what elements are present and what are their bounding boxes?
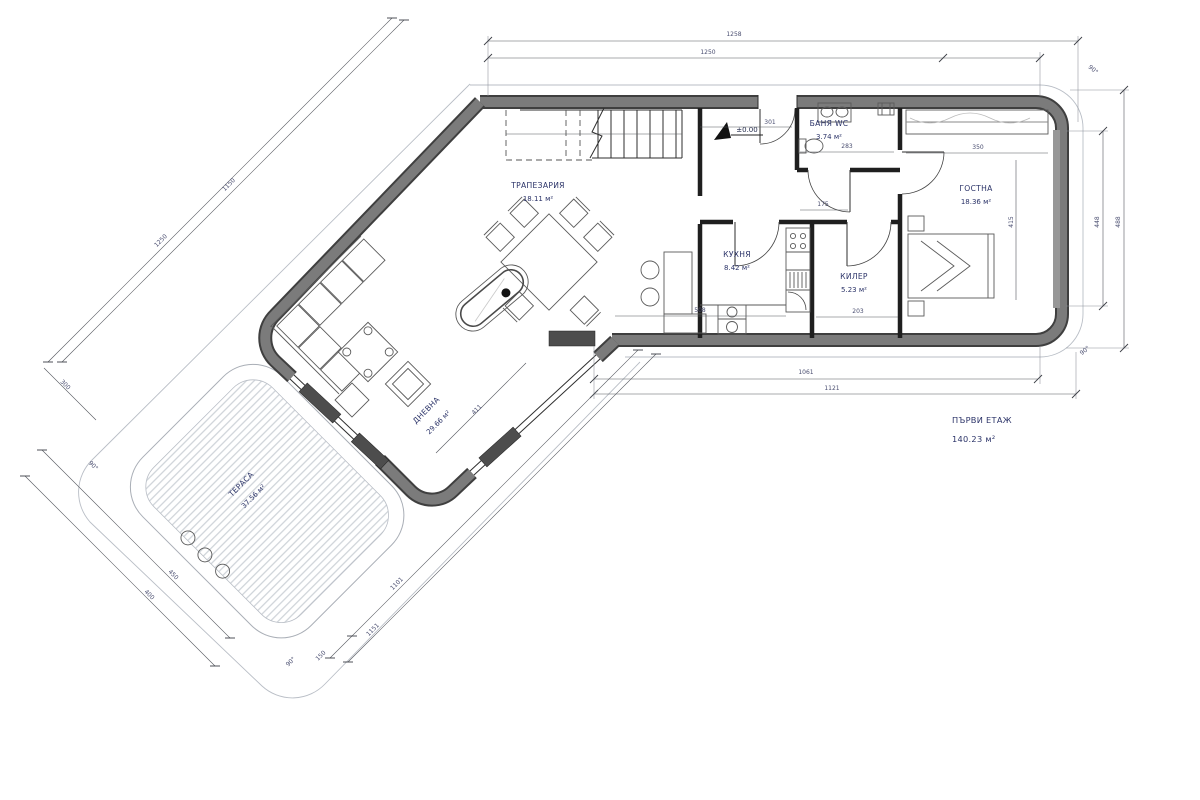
room-area-bathroom: 3.74 м² bbox=[816, 133, 842, 141]
floor-name: ПЪРВИ ЕТАЖ bbox=[952, 415, 1012, 425]
bar-counter bbox=[641, 252, 706, 333]
armchair bbox=[385, 361, 430, 406]
room-area-dining: 18.11 м² bbox=[523, 195, 554, 203]
room-name-dining: ТРАПЕЗАРИЯ bbox=[510, 181, 565, 190]
guest-room-furniture bbox=[906, 110, 1048, 316]
angle-label: 90° bbox=[87, 460, 99, 472]
dim-top-inner: 1250 bbox=[700, 49, 715, 56]
dim-small: 1150 bbox=[221, 177, 237, 193]
bar-stool bbox=[641, 288, 659, 306]
angle-label: 90° bbox=[1087, 64, 1100, 76]
bar-stool bbox=[641, 261, 659, 279]
floor-area: 140.23 м² bbox=[952, 434, 995, 444]
door-panel bbox=[479, 427, 521, 467]
dim-bottom-inner: 1061 bbox=[798, 369, 813, 376]
dim-small: 283 bbox=[841, 143, 853, 150]
cooktop bbox=[790, 233, 805, 248]
sink bbox=[718, 305, 746, 334]
dim-right-outer: 488 bbox=[1115, 216, 1122, 228]
dim-small: 150 bbox=[314, 649, 327, 662]
chair bbox=[584, 221, 614, 251]
room-area-pantry: 5.23 м² bbox=[841, 286, 867, 294]
interior-walls bbox=[700, 108, 900, 338]
dim-top-outer: 1258 bbox=[726, 31, 741, 38]
staircase bbox=[506, 108, 682, 160]
nightstand bbox=[908, 301, 924, 316]
dim-small: 203 bbox=[852, 308, 864, 315]
nightstand bbox=[908, 216, 924, 231]
dim-small: 175 bbox=[817, 201, 829, 208]
angle-label: 90° bbox=[1079, 345, 1092, 357]
room-area-kitchen: 8.42 м² bbox=[724, 264, 750, 272]
right-wall-window bbox=[1053, 130, 1060, 308]
dim-small: 450 bbox=[167, 568, 180, 581]
room-name-kitchen: КУХНЯ bbox=[723, 250, 751, 259]
floor-title: ПЪРВИ ЕТАЖ 140.23 м² bbox=[952, 415, 1012, 444]
fridge-door bbox=[788, 292, 806, 310]
dim-small: 415 bbox=[1008, 216, 1015, 228]
dim-small: 350 bbox=[972, 144, 984, 151]
room-name-pantry: КИЛЕР bbox=[840, 272, 868, 281]
floor-plan-canvas: ±0.00 ТРАПЕЗАРИЯ 18.11 м² КУХНЯ 8.42 м² … bbox=[0, 0, 1200, 800]
bed bbox=[908, 234, 994, 298]
toilet bbox=[799, 139, 823, 153]
level-flag-icon bbox=[714, 122, 731, 140]
room-name-guest: ГОСТНА bbox=[959, 184, 993, 193]
dishwasher bbox=[790, 272, 806, 288]
dim-small: 300 bbox=[59, 378, 72, 391]
dim-small: 400 bbox=[143, 588, 156, 601]
dim-small: 508 bbox=[694, 307, 706, 314]
kitchen-counter bbox=[700, 228, 810, 334]
door-panel bbox=[549, 331, 595, 346]
room-name-bathroom: БАНЯ WC bbox=[810, 119, 849, 128]
dim-small: 1101 bbox=[389, 576, 405, 592]
dim-small: 411 bbox=[470, 403, 483, 416]
dim-bottom-outer: 1121 bbox=[824, 385, 839, 392]
room-area-guest: 18.36 м² bbox=[961, 198, 992, 206]
dim-small: 301 bbox=[764, 119, 776, 126]
chair bbox=[484, 221, 514, 251]
angle-label: 90° bbox=[285, 656, 297, 668]
level-marker: ±0.00 bbox=[714, 122, 763, 140]
chair bbox=[570, 296, 600, 326]
chair bbox=[560, 197, 590, 227]
dim-small: 1250 bbox=[153, 233, 169, 249]
dim-right-inner: 448 bbox=[1094, 216, 1101, 228]
